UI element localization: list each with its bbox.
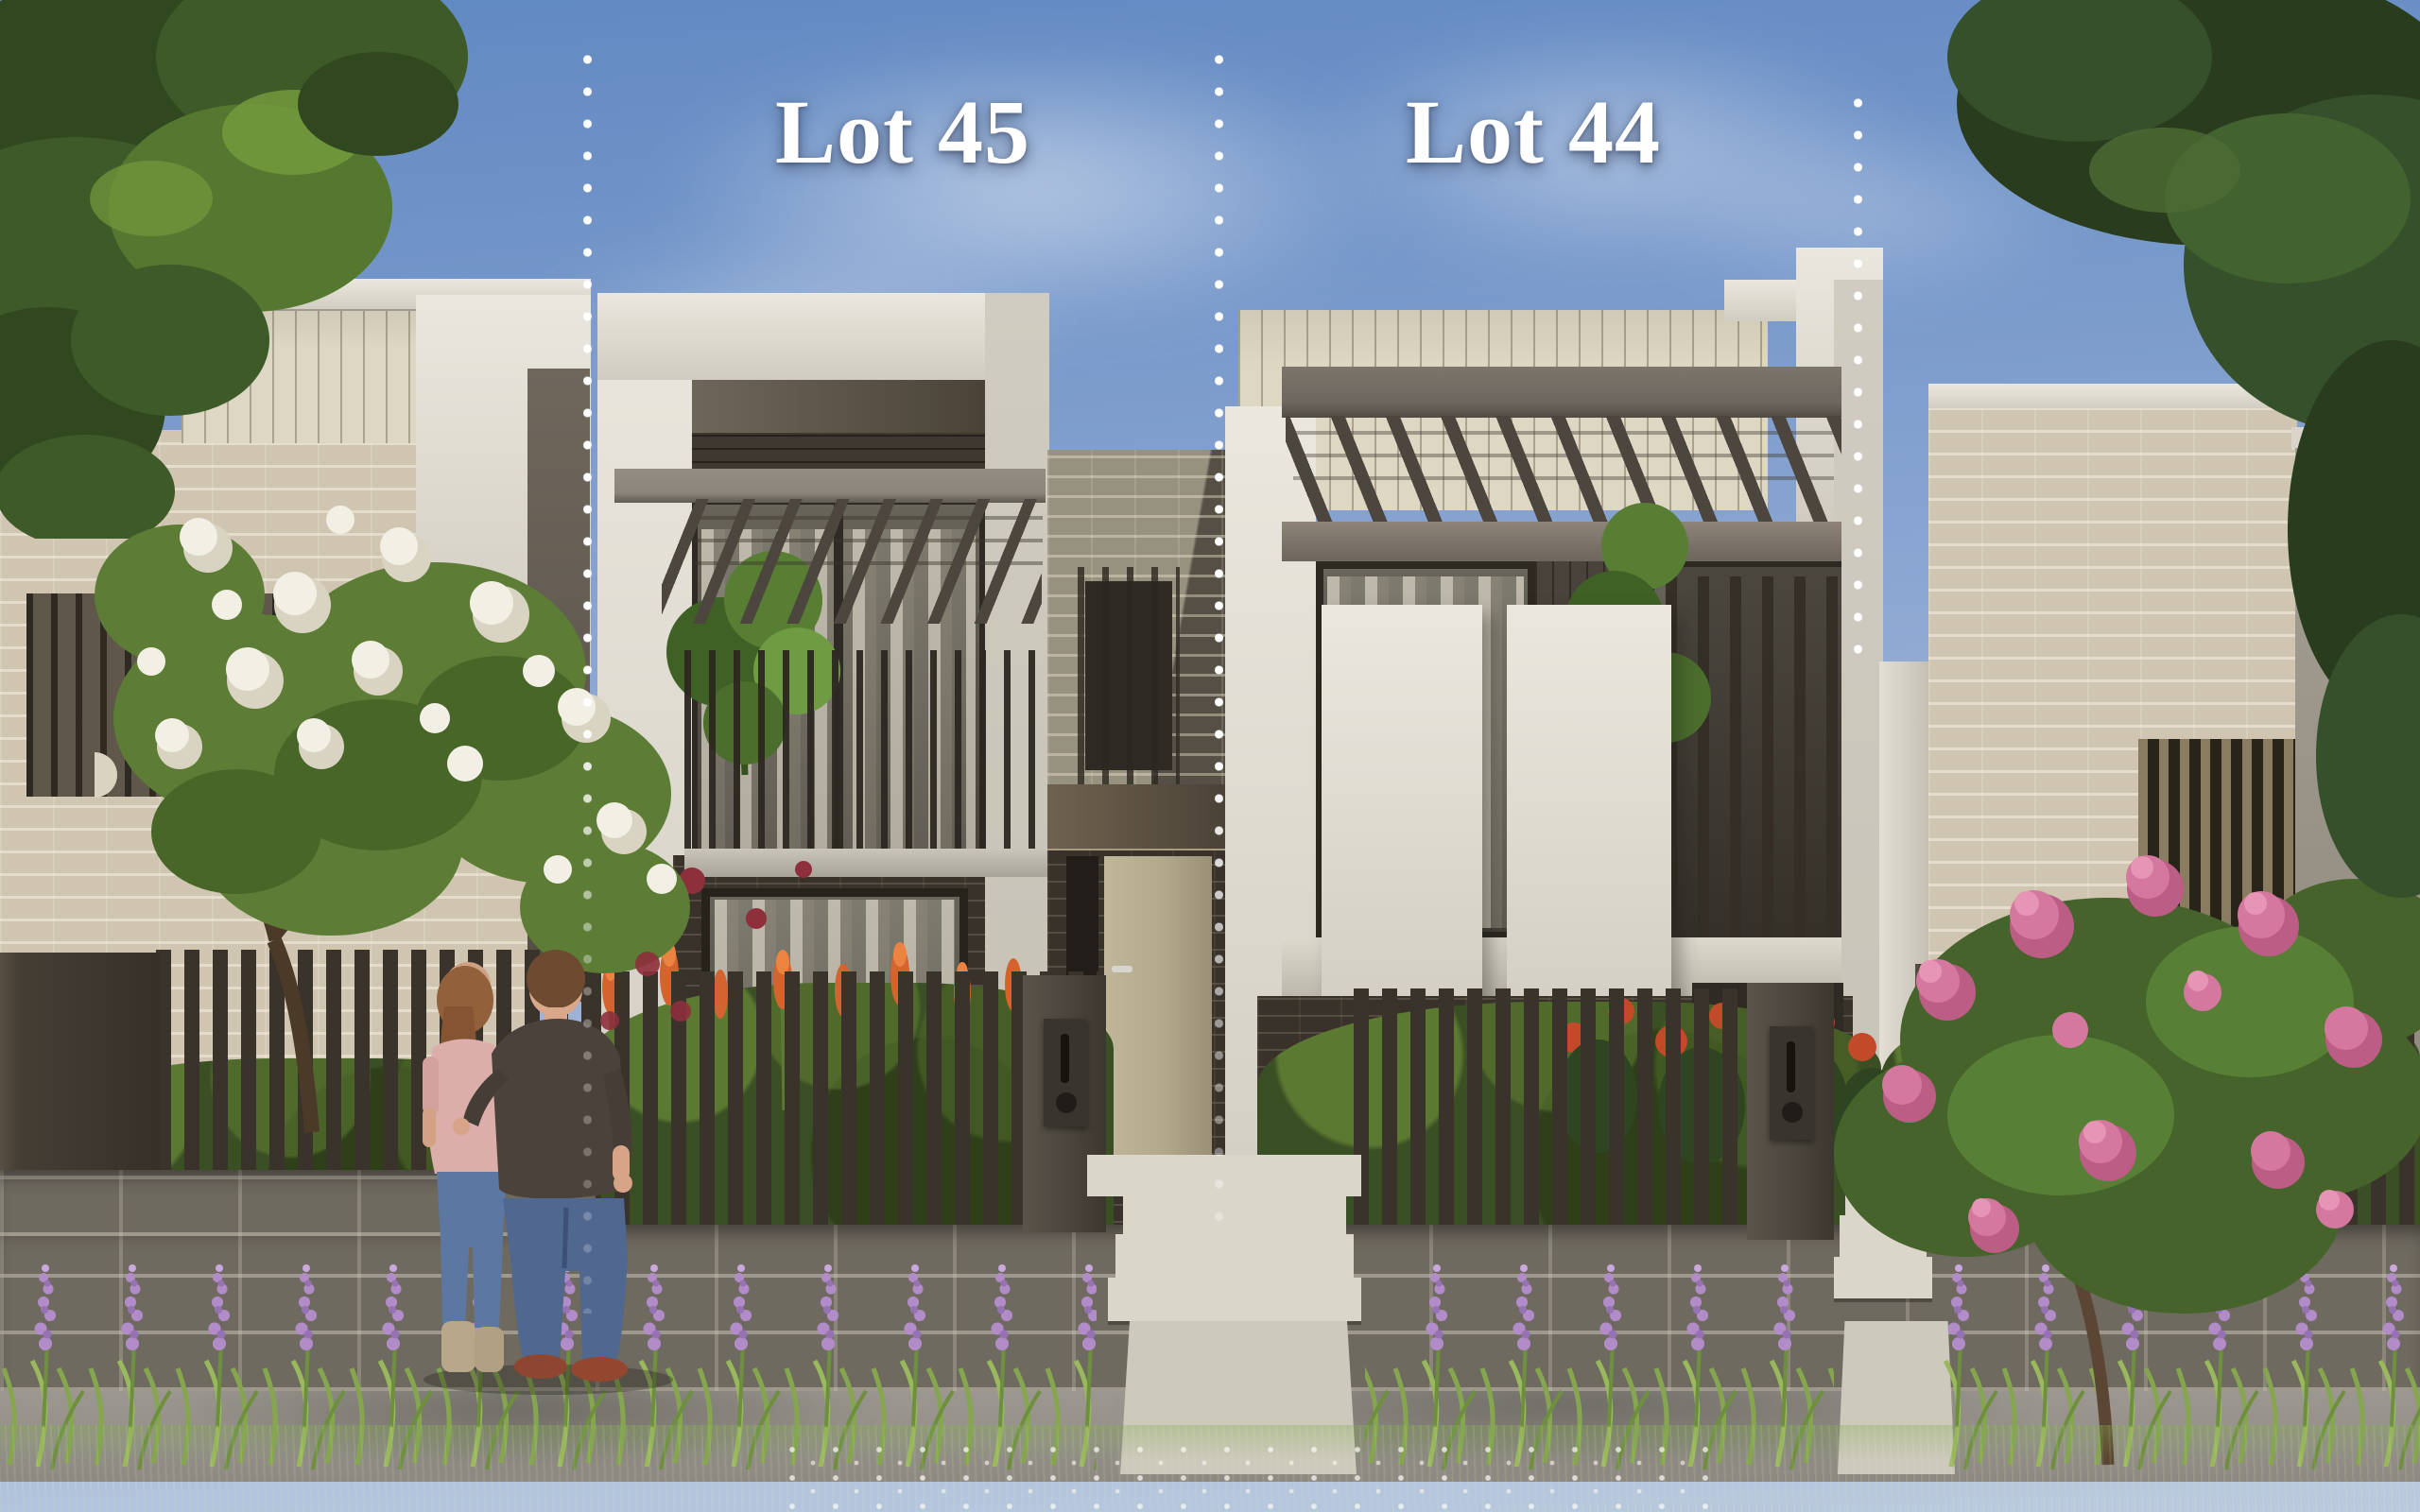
lot44-letterbox-slot [1787,1041,1795,1092]
boundary-dotted-line-middle [1215,55,1223,1232]
lot45-soffit [692,380,985,435]
lot45-step [1123,1189,1346,1234]
tree-canopy-top-right [1928,0,2420,945]
couple-viewing [397,926,700,1399]
lot44-pergola-beam-top [1282,367,1841,418]
groundcover-flowers [785,1444,1720,1512]
lot45-letterbox-slot [1061,1034,1069,1083]
lot45-frame-top [597,293,1049,380]
lot44-intercom-button [1782,1102,1803,1123]
lot45-intercom-button [1056,1092,1077,1113]
lot44-label: Lot 44 [1406,79,1661,184]
boundary-dotted-line-left [583,55,592,1314]
boundary-dotted-line-right [1854,98,1862,665]
lot45-label: Lot 45 [775,79,1030,184]
mid-window-slats [1078,567,1180,784]
render-canvas: Lot 45 Lot 44 [0,0,2420,1512]
